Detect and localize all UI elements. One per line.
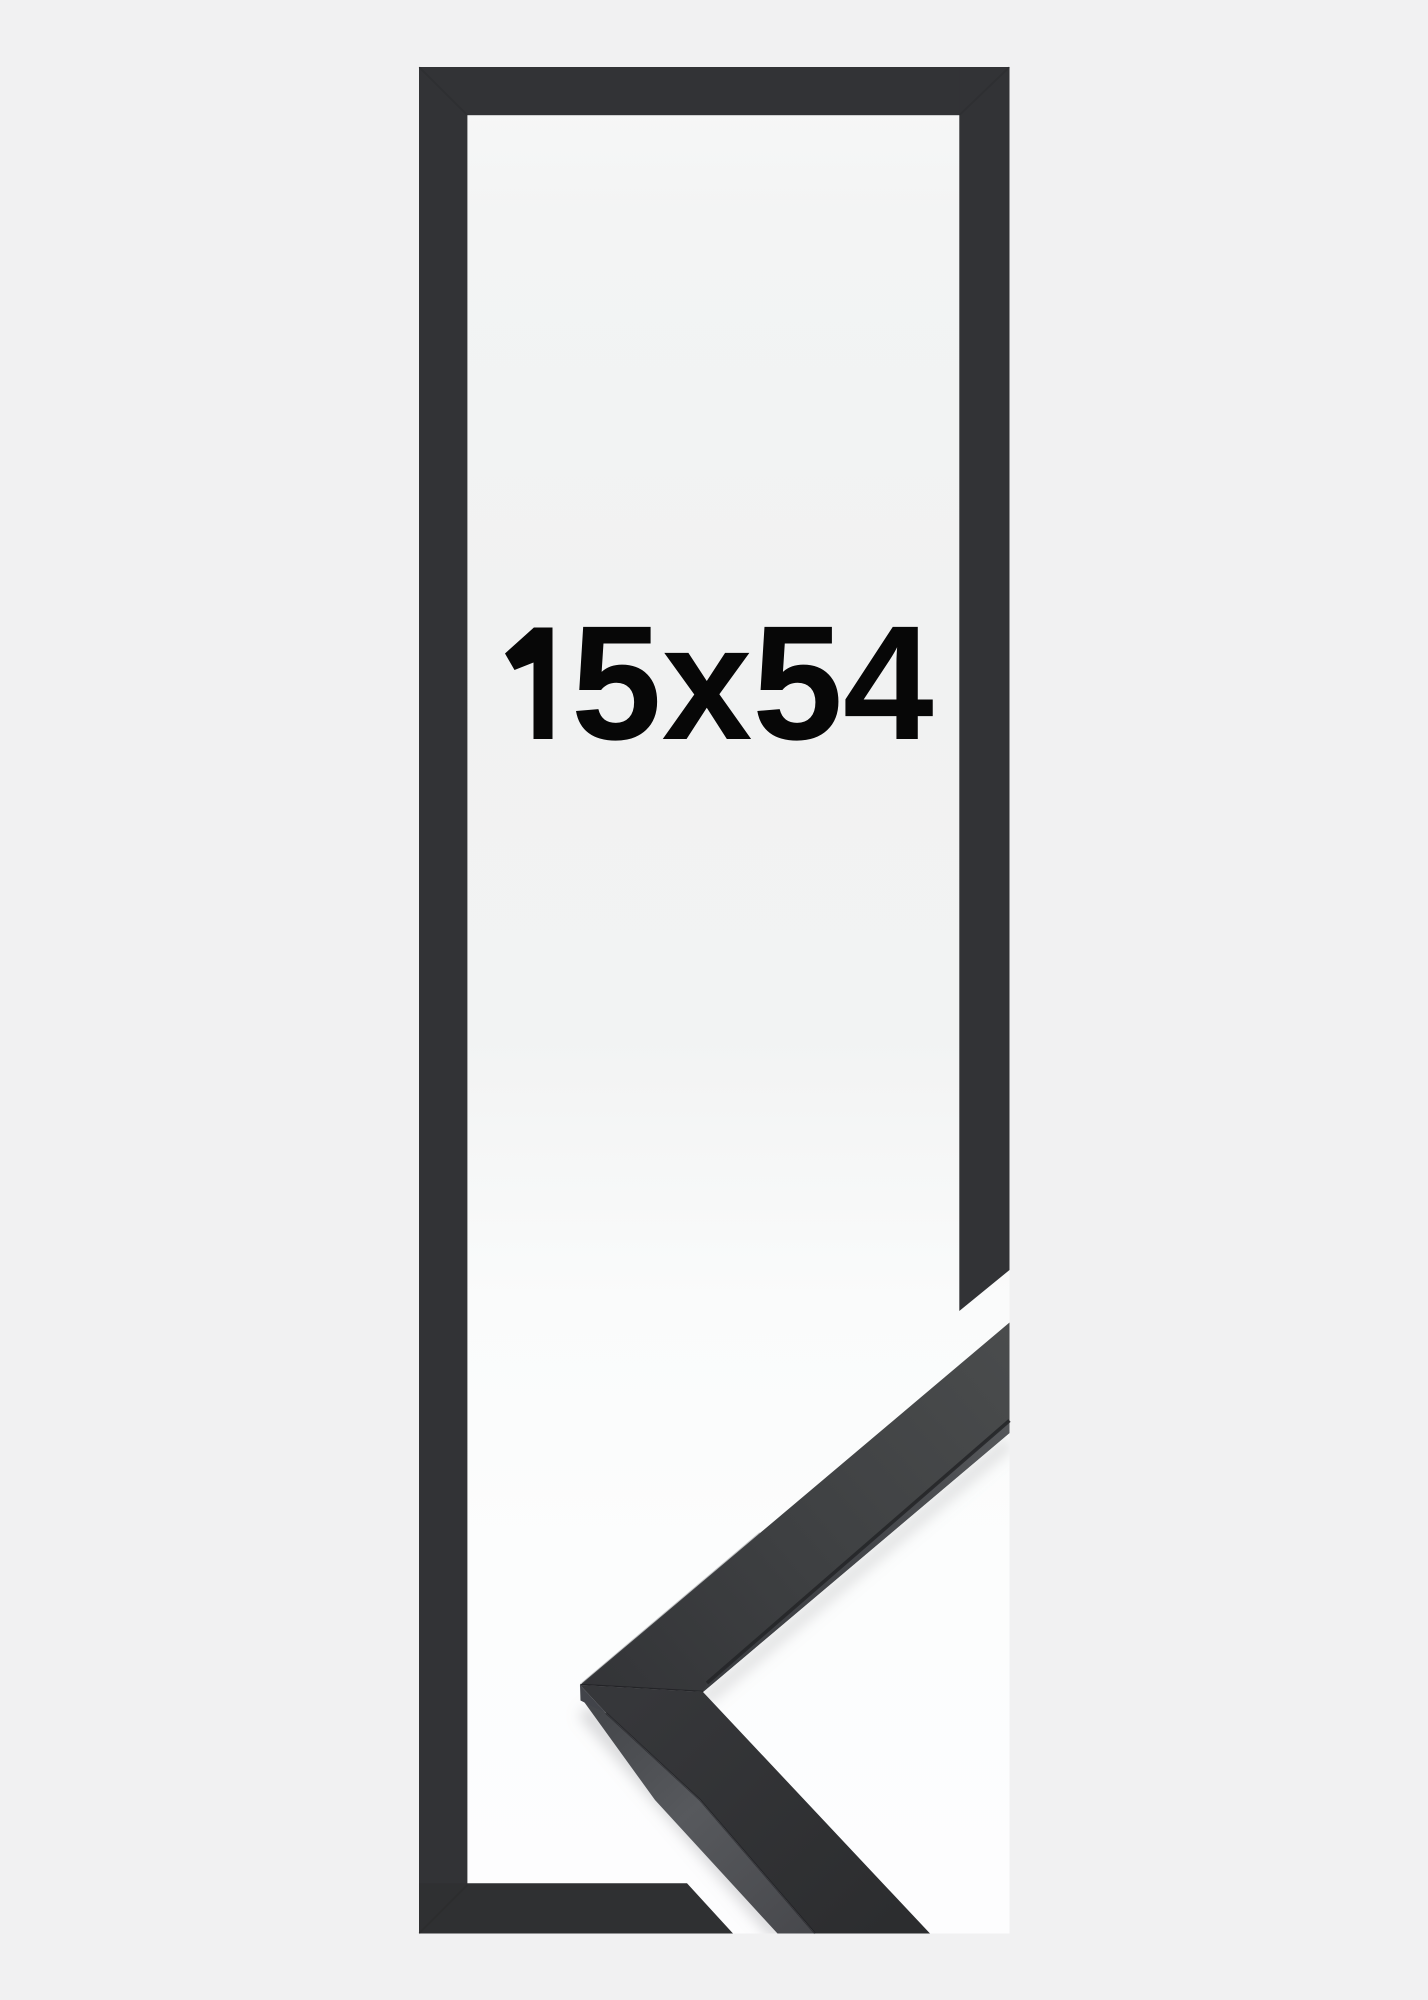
svg-text:5x54: 5x54 (571, 591, 934, 774)
